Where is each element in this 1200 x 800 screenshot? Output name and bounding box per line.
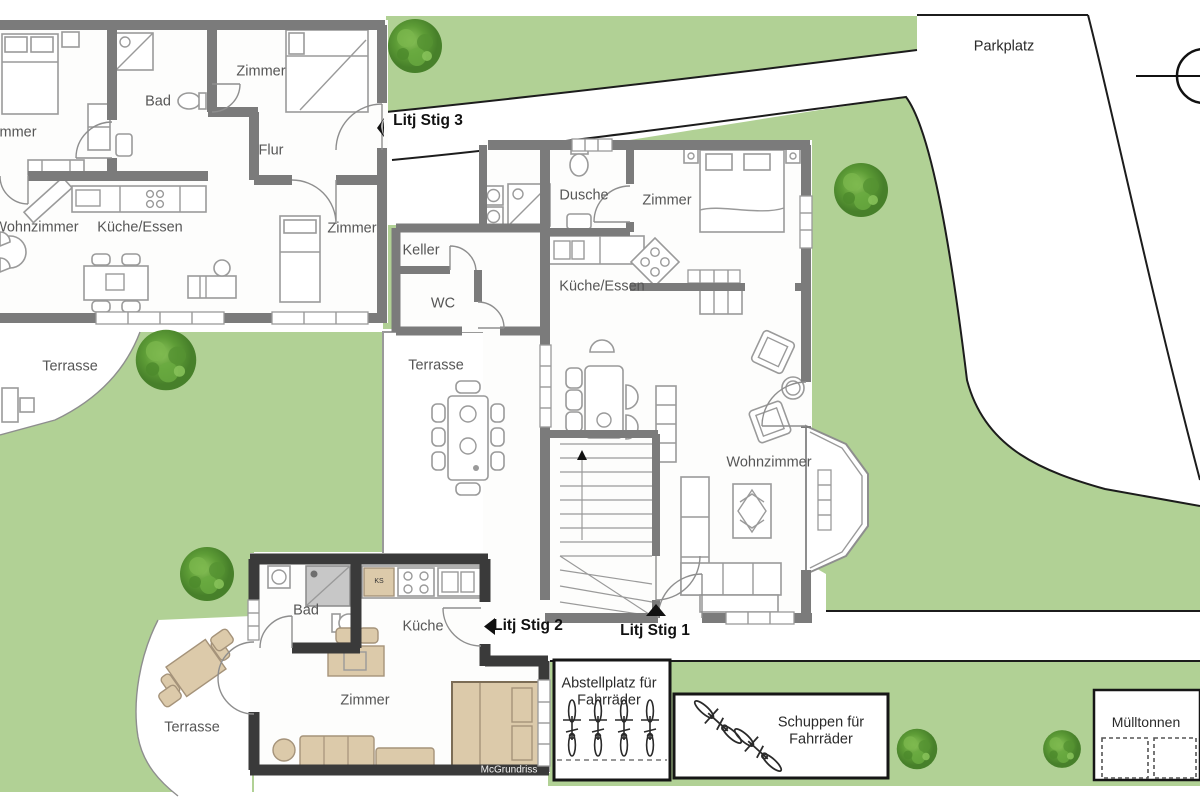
watermark: McGrundriss [481, 764, 538, 776]
site-label-parkplatz: Parkplatz [974, 39, 1034, 56]
room-label-bad-studio: Bad [293, 603, 319, 620]
room-label-kueche-studio: Küche [402, 619, 443, 636]
room-label-zimmer-c: Zimmer [327, 221, 376, 238]
room-label-bad-tl: Bad [145, 94, 171, 111]
site-label-abstellplatz: Abstellplatz für Fahrräder [554, 675, 664, 708]
appliance-label-ks: KS [374, 578, 383, 586]
room-label-zimmer-b: Zimmer [0, 125, 37, 142]
room-label-wohnzimmer-tl: Wohnzimmer [0, 220, 79, 237]
entrance-label-litj-stig-1: Litj Stig 1 [620, 622, 690, 640]
room-label-wc: WC [431, 296, 455, 313]
room-label-zimmer-studio: Zimmer [340, 693, 389, 710]
site-label-muelltonnen: Mülltonnen [1112, 714, 1181, 730]
tree-icon [180, 547, 234, 601]
room-label-flur: Flur [259, 143, 284, 160]
room-label-wohnzimmer-mid: Wohnzimmer [726, 455, 811, 472]
entrance-label-litj-stig-2: Litj Stig 2 [493, 617, 563, 635]
bush-icon [897, 729, 938, 770]
compass-icon [1136, 49, 1200, 103]
muelltonnen-box [1094, 690, 1200, 780]
room-label-terrasse-studio: Terrasse [164, 720, 220, 737]
floor-plan: Zimmer Bad Zimmer Flur Wohnzimmer Küche/… [0, 0, 1200, 800]
room-label-terrasse-mid: Terrasse [408, 358, 464, 375]
bush-icon [1043, 730, 1081, 768]
tree-icon [136, 330, 196, 390]
room-label-dusche: Dusche [559, 188, 608, 205]
trash-bin [1154, 738, 1196, 778]
tree-icon [834, 163, 888, 217]
trash-bin [1102, 738, 1148, 778]
terrace-studio [136, 616, 252, 796]
room-label-kueche-essen-tl: Küche/Essen [97, 220, 182, 237]
room-label-zimmer-mid: Zimmer [642, 193, 691, 210]
tree-icon [388, 19, 442, 73]
entrance-label-litj-stig-3: Litj Stig 3 [393, 112, 463, 130]
site-label-schuppen: Schuppen für Fahrräder [761, 714, 881, 747]
room-label-kueche-essen-mid: Küche/Essen [559, 279, 644, 296]
room-label-terrasse-tl: Terrasse [42, 359, 98, 376]
room-label-keller: Keller [402, 243, 439, 260]
room-label-zimmer-a: Zimmer [236, 64, 285, 81]
